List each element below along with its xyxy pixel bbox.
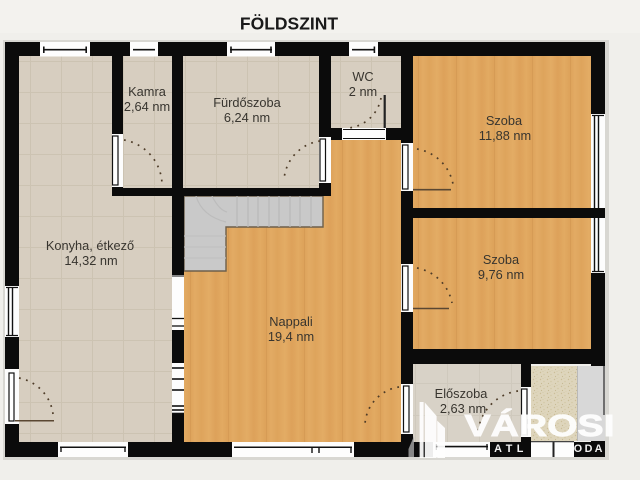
- svg-text:Konyha, étkező: Konyha, étkező: [46, 238, 134, 253]
- svg-text:A: A: [494, 443, 502, 455]
- svg-text:Fürdőszoba: Fürdőszoba: [213, 95, 281, 110]
- svg-text:6,24 nm: 6,24 nm: [224, 110, 270, 125]
- svg-text:Kamra: Kamra: [128, 84, 167, 99]
- svg-text:VÁROSI: VÁROSI: [465, 408, 615, 443]
- svg-text:19,4 nm: 19,4 nm: [268, 329, 314, 344]
- svg-text:D: D: [585, 443, 593, 455]
- svg-text:Szoba: Szoba: [483, 252, 520, 267]
- svg-text:T: T: [506, 443, 513, 455]
- svg-text:2 nm: 2 nm: [349, 84, 377, 99]
- svg-text:9,76 nm: 9,76 nm: [478, 267, 524, 282]
- svg-text:14,32 nm: 14,32 nm: [64, 253, 117, 268]
- svg-text:Szoba: Szoba: [486, 113, 523, 128]
- svg-text:FÖLDSZINT: FÖLDSZINT: [240, 14, 338, 34]
- svg-text:11,88 nm: 11,88 nm: [479, 128, 531, 143]
- svg-text:A: A: [595, 443, 603, 455]
- svg-text:Előszoba: Előszoba: [435, 386, 489, 401]
- svg-text:Nappali: Nappali: [269, 314, 312, 329]
- svg-text:2,64 nm: 2,64 nm: [124, 99, 170, 114]
- svg-text:O: O: [574, 443, 582, 455]
- svg-text:WC: WC: [352, 69, 373, 84]
- svg-text:L: L: [517, 443, 524, 455]
